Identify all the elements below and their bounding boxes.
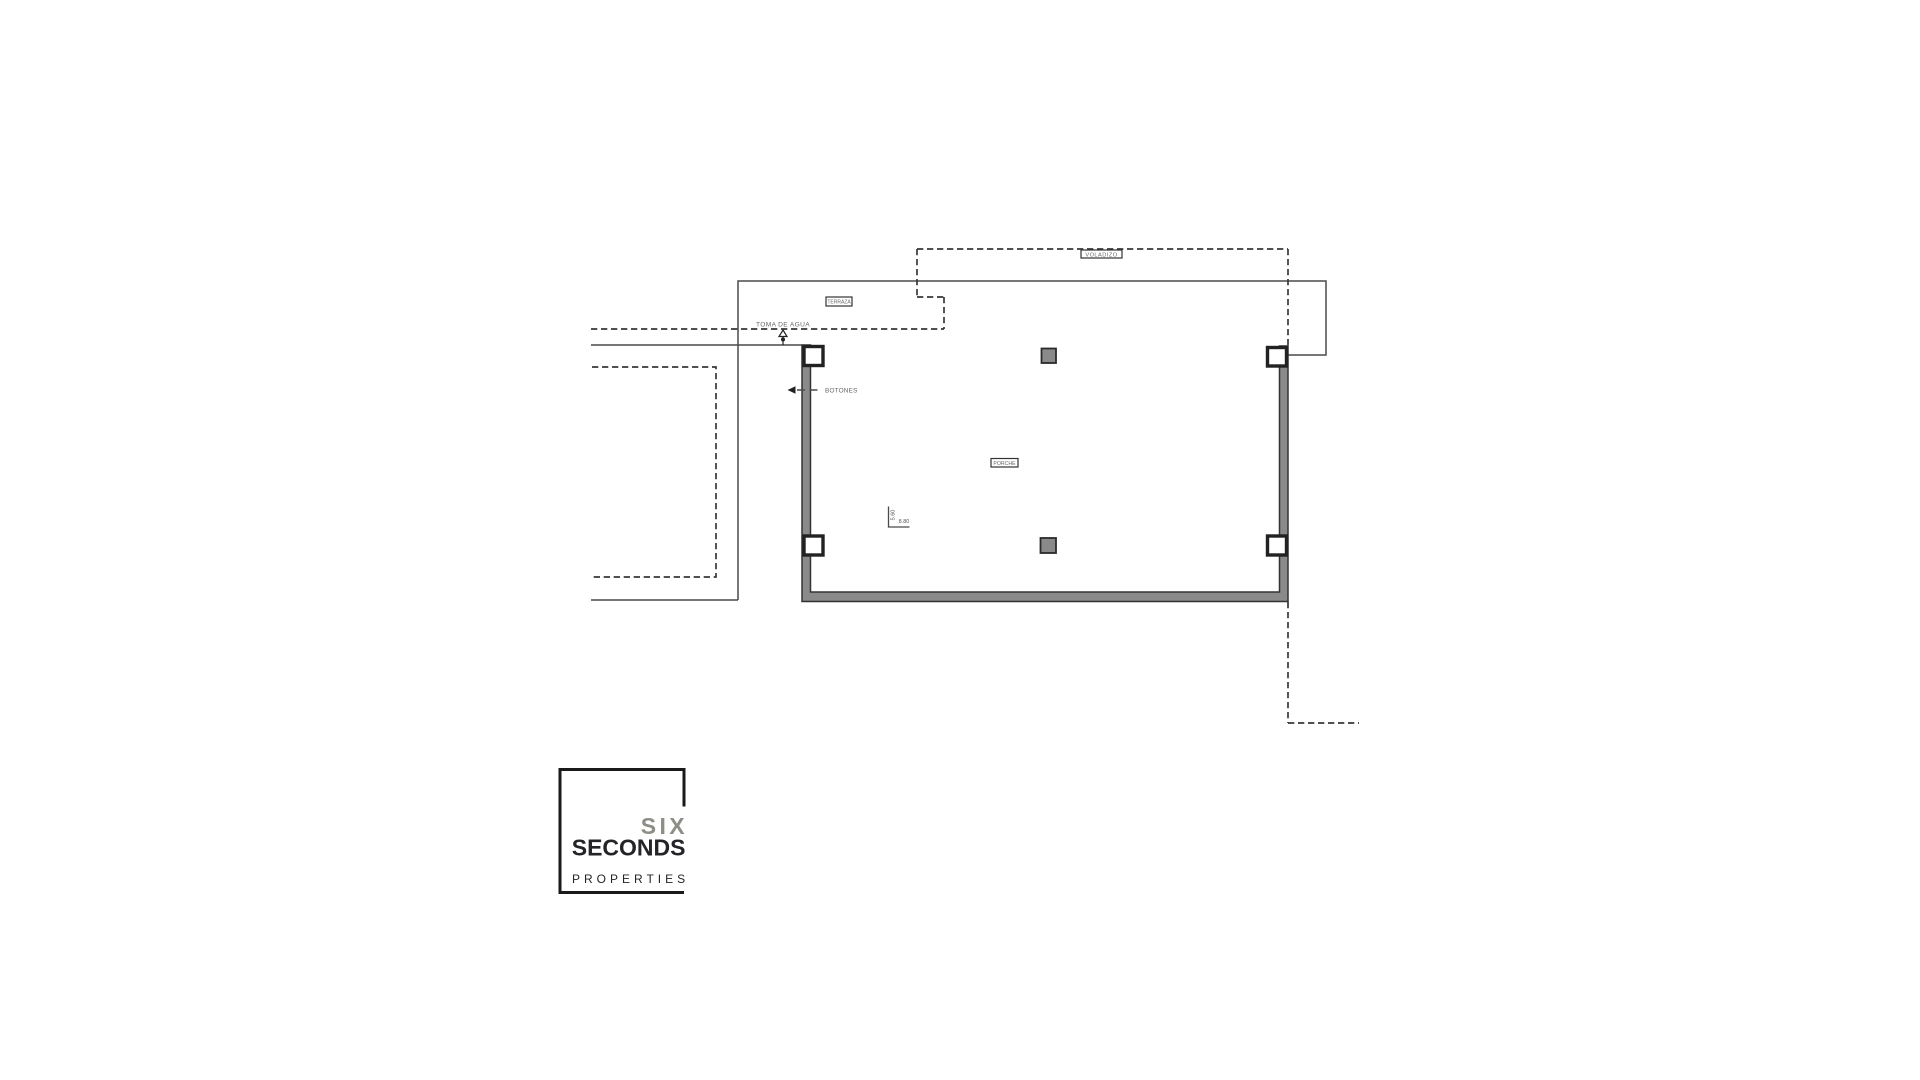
svg-text:BOTONES: BOTONES [825, 388, 858, 395]
svg-text:SECONDS: SECONDS [572, 835, 686, 861]
svg-text:8.80: 8.80 [899, 519, 910, 525]
svg-text:TERRAZA: TERRAZA [827, 300, 851, 306]
svg-text:5.60: 5.60 [891, 510, 897, 521]
svg-text:TOMA DE AGUA: TOMA DE AGUA [756, 322, 810, 329]
svg-text:PROPERTIES: PROPERTIES [572, 872, 689, 886]
svg-text:PORCHE: PORCHE [993, 461, 1016, 467]
svg-text:VOLADIZO: VOLADIZO [1085, 252, 1117, 258]
